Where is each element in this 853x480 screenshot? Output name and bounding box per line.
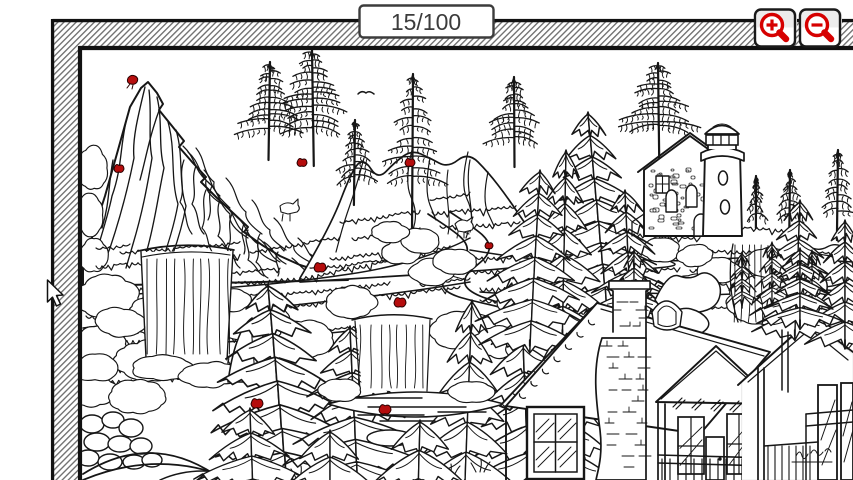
svg-text:15/100: 15/100	[391, 9, 461, 35]
